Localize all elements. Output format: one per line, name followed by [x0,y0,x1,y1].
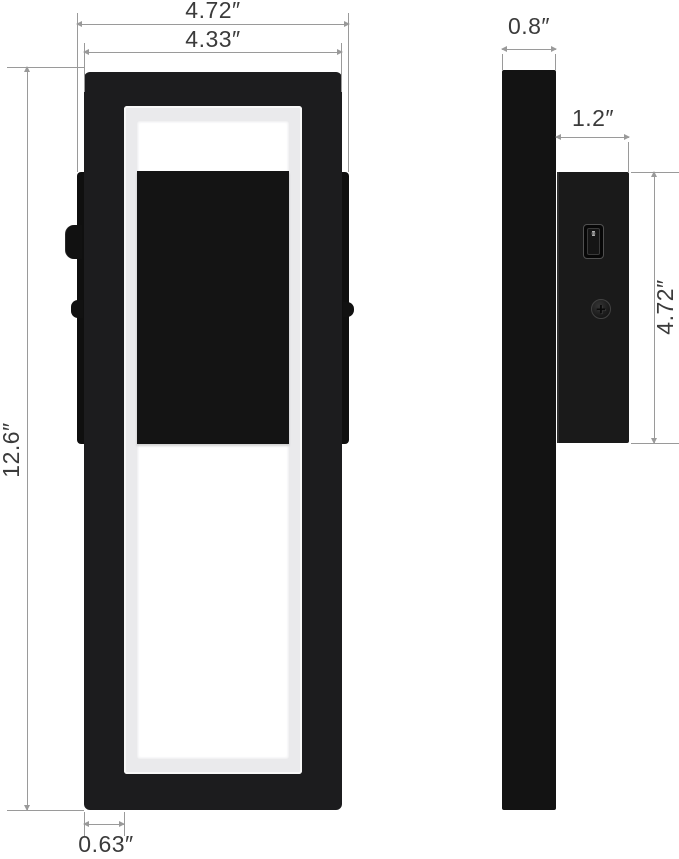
label-overall-width: 4.72″ [173,0,253,24]
power-switch: I O [583,224,604,259]
dim-line-overall-width [77,24,349,25]
screw-bump-left [71,300,83,318]
dim-line-height [27,67,28,810]
front-housing-panel [137,171,289,444]
label-height: 12.6″ [1,410,25,490]
ext-line-frame-depth-left [502,54,503,70]
ext-line-overall-width-left [77,13,78,172]
dim-line-thickness [84,824,124,825]
screw-phillips-icon: + [591,299,611,319]
label-frame-depth: 0.8″ [489,16,569,40]
power-switch-profile [65,225,82,259]
ext-line-overall-width-right [348,13,349,172]
fixture-frame-side [502,70,556,810]
power-switch-rocker: I O [587,228,600,255]
product-dimension-diagram: 4.72″ 4.33″ 12.6″ 0.63″ I O + 0.8″ 1.2″ … [0,0,679,859]
switch-off-mark: O [591,231,595,238]
ext-line-body-depth-right [628,142,629,172]
label-body-depth: 1.2″ [553,108,633,132]
label-frame-width: 4.33″ [173,29,253,53]
label-frame-thickness: 0.63″ [66,834,146,858]
ext-line-height-bottom [7,810,84,811]
dim-line-body-depth [556,137,629,138]
label-body-height: 4.72″ [655,267,679,347]
ext-line-frame-depth-right [555,54,556,70]
screw-bump-right [343,302,354,317]
dim-line-frame-depth [502,49,556,50]
ext-line-height-top [7,67,84,68]
